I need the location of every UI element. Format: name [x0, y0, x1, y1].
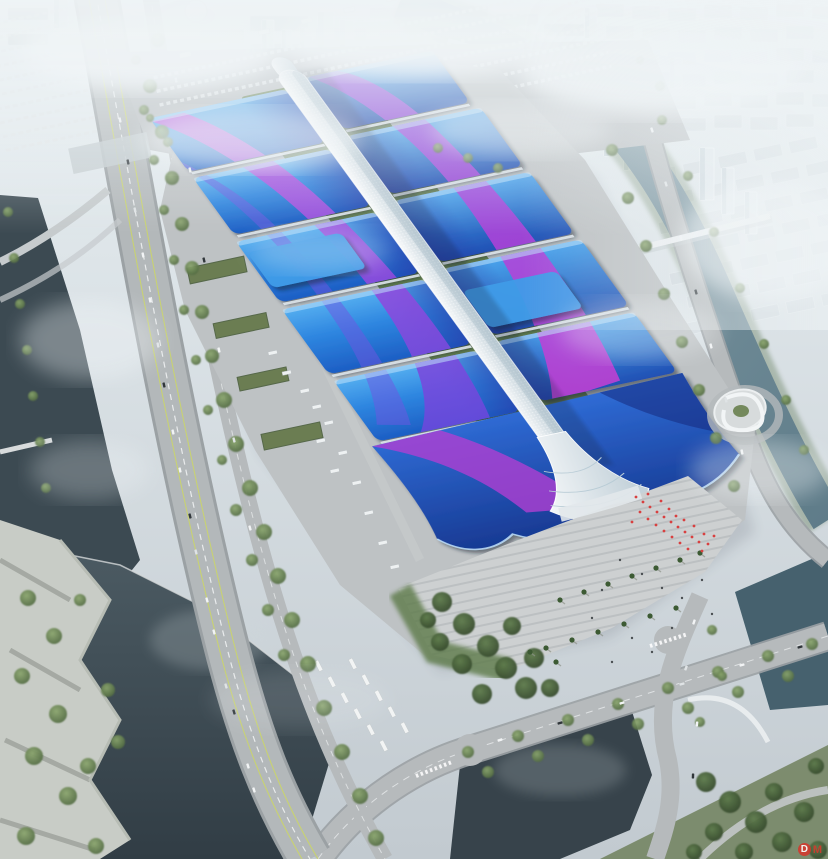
watermark-logo: D	[798, 843, 811, 856]
watermark: D M	[798, 843, 822, 856]
watermark-text: M	[813, 844, 822, 856]
water-reflection	[494, 744, 626, 796]
scene-canvas	[0, 0, 828, 859]
right-fog	[520, 0, 828, 330]
aerial-rendering-exhibition-center: D M	[0, 0, 828, 859]
